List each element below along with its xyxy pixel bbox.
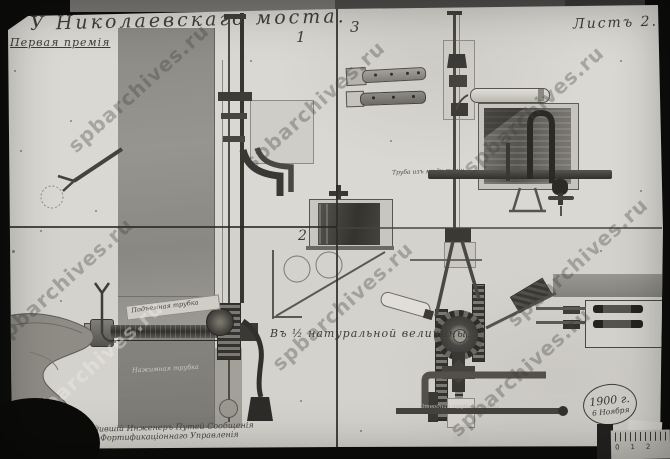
fig1-clamp	[223, 136, 245, 142]
speck	[20, 150, 22, 152]
fig3-fitting	[449, 75, 467, 87]
fig2-base-lip	[306, 246, 394, 250]
fig1-crank-hub	[240, 323, 258, 341]
speck	[14, 70, 16, 72]
fig1-clamp	[218, 92, 252, 101]
archival-photo: У Николаевскаго моста. Первая премія Лис…	[0, 0, 670, 459]
speck	[300, 400, 302, 402]
bolt-drawing	[593, 320, 643, 328]
figure-2-number: 2	[298, 228, 307, 244]
latch-piece	[346, 87, 427, 110]
ruler-number: 1	[630, 443, 635, 451]
fig1-rod	[228, 16, 230, 422]
counterweight	[247, 397, 273, 421]
speck	[360, 430, 362, 432]
pipe-ball-end	[558, 406, 568, 416]
fig3-top-tee	[447, 11, 462, 15]
ruler-number: 0	[615, 443, 620, 451]
ruler-tick-marks	[615, 431, 670, 441]
latch-hole	[372, 96, 375, 99]
fig3-fitting	[447, 54, 467, 68]
document-sheet: У Николаевскаго моста. Первая премія Лис…	[0, 0, 670, 459]
fig3-rod-highlight	[459, 12, 460, 237]
photo-ruler: 0 1 2	[611, 429, 670, 459]
pulley-wheel	[219, 399, 238, 418]
fig3-fitting	[451, 103, 468, 116]
crank-handle-link	[423, 309, 434, 320]
thin-cross-line	[410, 259, 482, 261]
speck	[250, 60, 252, 62]
clamp-t-handle	[548, 196, 574, 200]
fig1-pinion-gear	[206, 308, 234, 336]
fig2-screw-bar	[329, 191, 348, 196]
sheet-label: Листъ 2.	[573, 14, 658, 33]
speck	[12, 250, 15, 253]
dashed-circle	[41, 186, 63, 208]
cross-fitting-diamond	[446, 359, 470, 383]
horizontal-fold-line-left	[8, 226, 337, 228]
tank-pedestal-drawing	[509, 188, 546, 211]
speck	[60, 300, 62, 302]
latch-hole	[392, 96, 395, 99]
speck	[95, 210, 97, 212]
fig1-clamp	[221, 113, 247, 119]
clamp-drip	[560, 206, 562, 216]
speck	[40, 230, 42, 232]
speck	[620, 60, 622, 62]
latch-hole	[412, 95, 415, 98]
award-note: Первая премія	[10, 36, 110, 49]
fig2-slats	[319, 204, 333, 244]
bolt-drawing	[593, 305, 643, 313]
figure-3-number: 3	[350, 18, 360, 36]
ruler-number: 2	[646, 443, 651, 451]
gear-top-fitting	[445, 228, 471, 242]
speck	[640, 190, 642, 192]
gear-back-panel	[444, 242, 476, 268]
speck	[70, 120, 72, 122]
speck	[390, 140, 392, 142]
figure-1-number: 1	[296, 28, 306, 46]
fig3-rod	[453, 12, 456, 242]
